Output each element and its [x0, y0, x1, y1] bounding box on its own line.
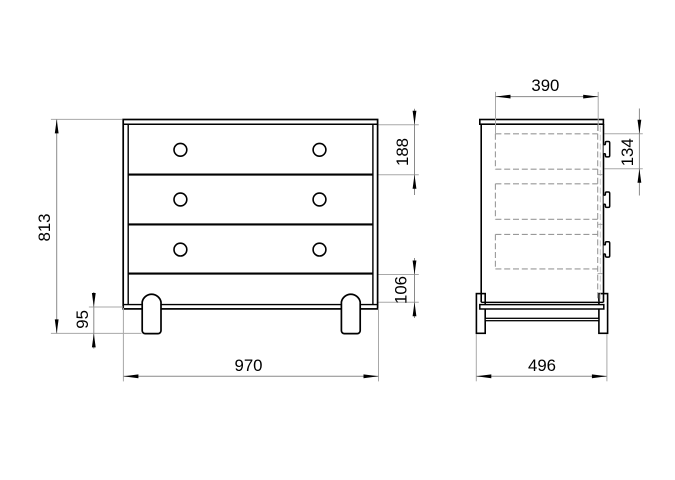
svg-text:95: 95: [73, 310, 92, 329]
svg-text:134: 134: [618, 138, 637, 166]
svg-text:970: 970: [235, 356, 263, 375]
svg-text:813: 813: [35, 214, 54, 242]
svg-text:496: 496: [528, 356, 556, 375]
svg-text:188: 188: [393, 138, 412, 166]
svg-text:390: 390: [531, 76, 559, 95]
svg-text:106: 106: [392, 276, 411, 304]
